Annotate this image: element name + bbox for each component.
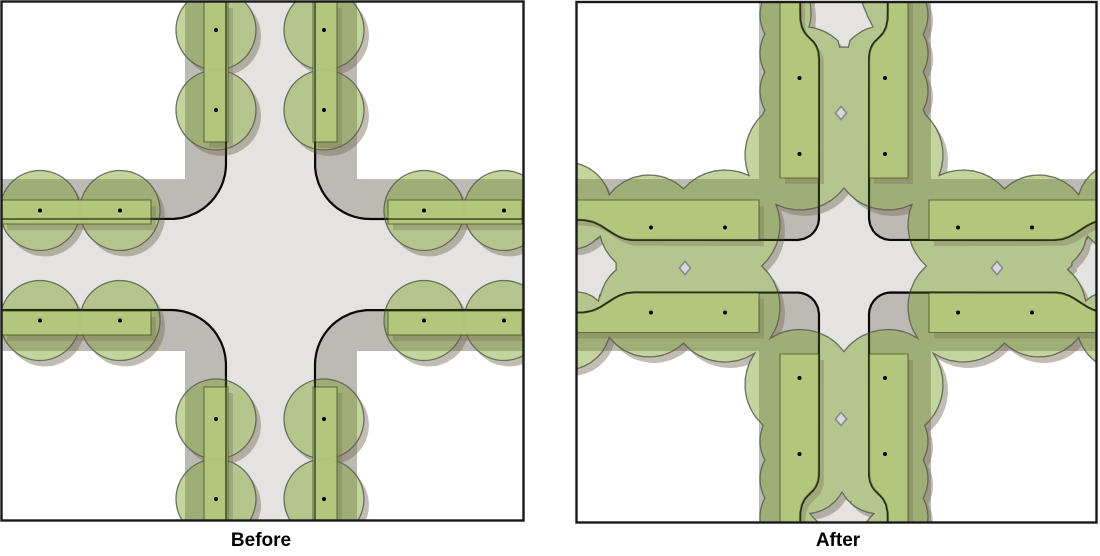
- svg-text:Before: Before: [231, 530, 291, 551]
- svg-text:After: After: [816, 530, 861, 551]
